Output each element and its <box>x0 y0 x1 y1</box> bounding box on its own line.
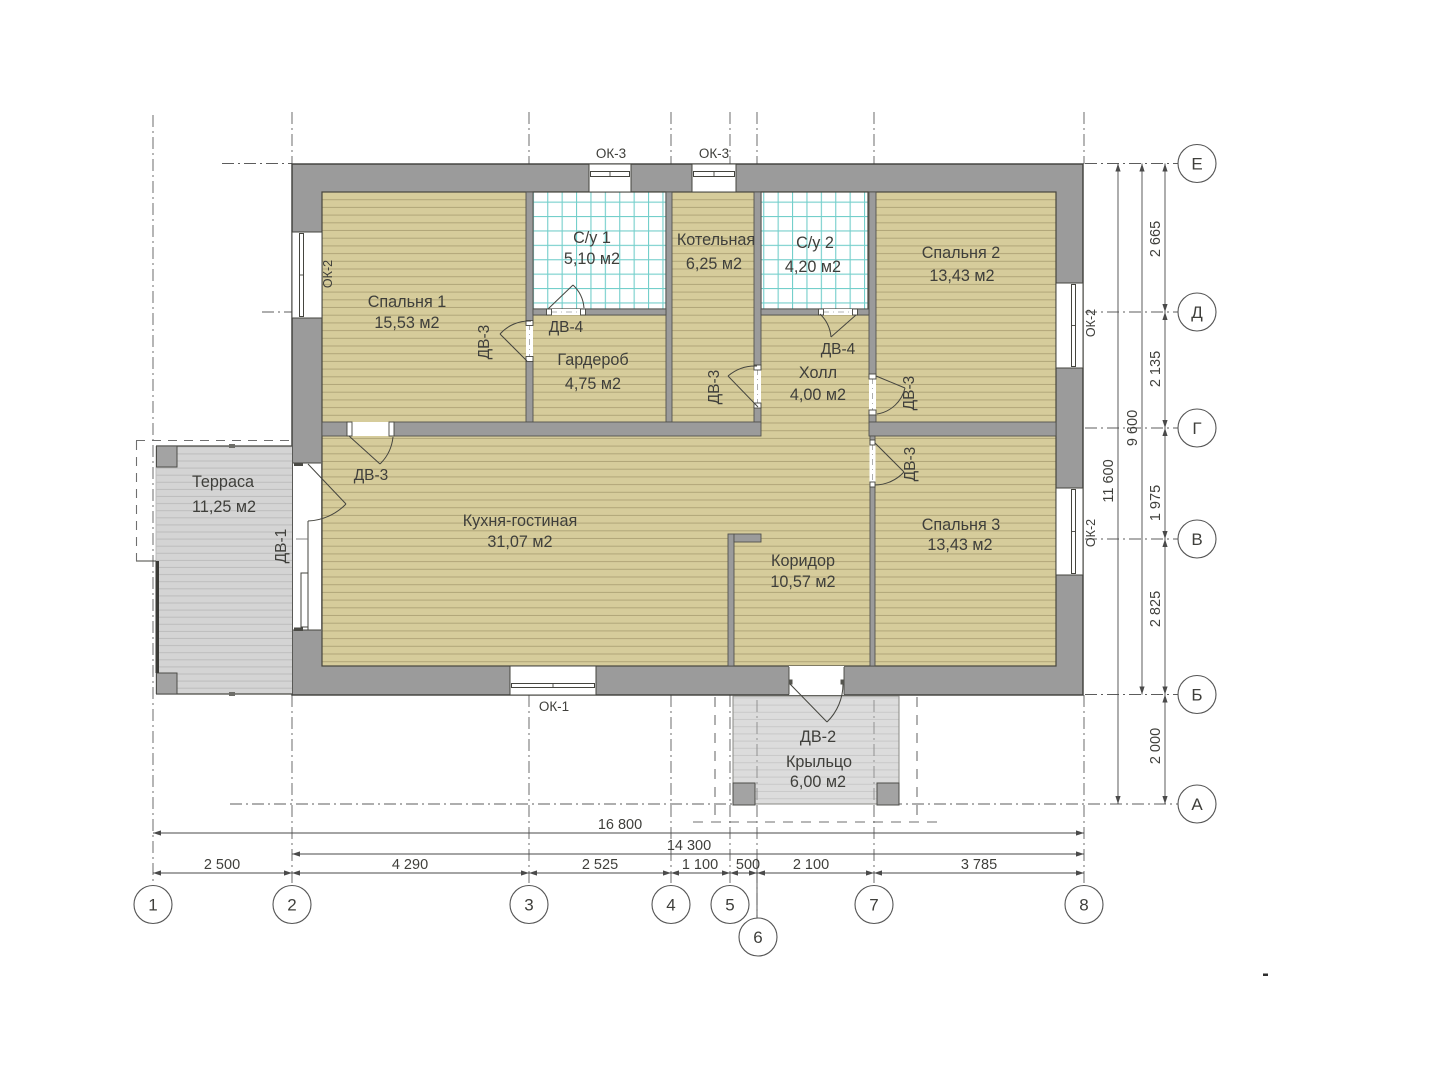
svg-text:Спальня 2: Спальня 2 <box>922 244 1001 262</box>
svg-text:16 800: 16 800 <box>598 817 642 833</box>
svg-text:15,53 м2: 15,53 м2 <box>374 314 439 332</box>
svg-text:6,25 м2: 6,25 м2 <box>686 255 742 273</box>
svg-text:13,43 м2: 13,43 м2 <box>927 536 992 554</box>
svg-text:ОК-2: ОК-2 <box>321 260 335 288</box>
svg-text:Котельная: Котельная <box>677 231 755 249</box>
svg-text:2 135: 2 135 <box>1148 351 1164 387</box>
svg-text:2 825: 2 825 <box>1148 591 1164 627</box>
svg-text:ОК-1: ОК-1 <box>539 699 569 714</box>
svg-text:3: 3 <box>524 896 533 915</box>
svg-text:2: 2 <box>287 896 296 915</box>
svg-text:5: 5 <box>725 896 734 915</box>
svg-text:4,00 м2: 4,00 м2 <box>790 386 846 404</box>
svg-text:Кухня-гостиная: Кухня-гостиная <box>463 512 578 530</box>
svg-text:8: 8 <box>1079 896 1088 915</box>
svg-text:11 600: 11 600 <box>1101 459 1117 502</box>
svg-text:6: 6 <box>753 928 762 947</box>
svg-text:6,00 м2: 6,00 м2 <box>790 773 846 791</box>
svg-text:Б: Б <box>1191 686 1202 705</box>
svg-text:13,43 м2: 13,43 м2 <box>929 267 994 285</box>
svg-text:Спальня 1: Спальня 1 <box>368 293 447 311</box>
svg-text:ДВ-1: ДВ-1 <box>273 529 290 564</box>
svg-text:С/у 1: С/у 1 <box>573 229 611 247</box>
svg-text:31,07 м2: 31,07 м2 <box>487 533 552 551</box>
svg-text:ДВ-3: ДВ-3 <box>706 370 723 405</box>
svg-text:Крыльцо: Крыльцо <box>786 753 852 771</box>
svg-text:500: 500 <box>736 857 760 873</box>
svg-text:Коридор: Коридор <box>771 552 835 570</box>
svg-text:3 785: 3 785 <box>961 857 997 873</box>
svg-text:ОК-3: ОК-3 <box>596 146 626 161</box>
svg-text:Спальня 3: Спальня 3 <box>922 516 1001 534</box>
svg-text:10,57 м2: 10,57 м2 <box>770 573 835 591</box>
svg-text:2 665: 2 665 <box>1148 221 1164 257</box>
svg-text:4: 4 <box>666 896 675 915</box>
svg-text:4,20 м2: 4,20 м2 <box>785 258 841 276</box>
svg-text:ОК-3: ОК-3 <box>699 146 729 161</box>
svg-text:11,25 м2: 11,25 м2 <box>192 498 256 516</box>
svg-text:ДВ-4: ДВ-4 <box>549 319 584 336</box>
svg-text:7: 7 <box>869 896 878 915</box>
svg-text:ОК-2: ОК-2 <box>1084 309 1098 337</box>
svg-text:14 300: 14 300 <box>667 838 711 854</box>
svg-text:2 525: 2 525 <box>582 857 618 873</box>
svg-text:ДВ-2: ДВ-2 <box>800 728 836 746</box>
svg-text:Гардероб: Гардероб <box>557 351 628 369</box>
svg-text:9 600: 9 600 <box>1125 410 1141 446</box>
svg-text:4 290: 4 290 <box>392 857 428 873</box>
svg-text:В: В <box>1191 530 1202 549</box>
svg-text:2 100: 2 100 <box>793 857 829 873</box>
svg-text:5,10 м2: 5,10 м2 <box>564 250 620 268</box>
svg-text:Г: Г <box>1192 419 1201 438</box>
svg-text:1 975: 1 975 <box>1148 485 1164 521</box>
svg-text:2 000: 2 000 <box>1148 728 1164 764</box>
svg-text:ДВ-3: ДВ-3 <box>476 325 493 360</box>
svg-text:А: А <box>1191 795 1203 814</box>
svg-text:Д: Д <box>1191 303 1203 322</box>
svg-text:Холл: Холл <box>799 364 837 382</box>
svg-text:Терраса: Терраса <box>192 473 254 491</box>
svg-text:1 100: 1 100 <box>682 857 718 873</box>
svg-text:ДВ-3: ДВ-3 <box>902 447 919 482</box>
svg-text:ДВ-3: ДВ-3 <box>901 376 918 411</box>
svg-text:1: 1 <box>148 896 157 915</box>
svg-text:ОК-2: ОК-2 <box>1084 519 1098 547</box>
svg-text:ДВ-4: ДВ-4 <box>821 341 856 358</box>
svg-text:ДВ-3: ДВ-3 <box>354 467 389 484</box>
svg-text:2 500: 2 500 <box>204 857 240 873</box>
svg-text:Е: Е <box>1191 155 1202 174</box>
svg-text:4,75 м2: 4,75 м2 <box>565 375 621 393</box>
svg-text:С/у 2: С/у 2 <box>796 234 834 252</box>
